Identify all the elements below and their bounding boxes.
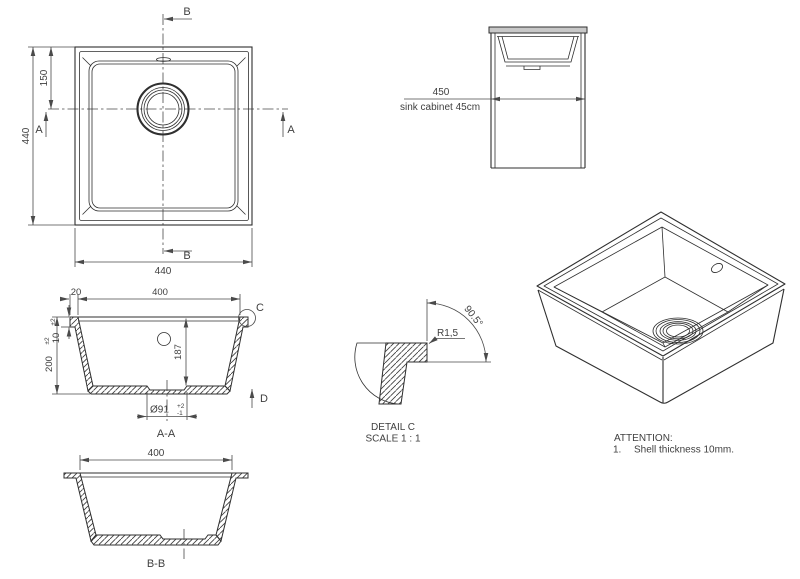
aa-dim-shell-tolerance: ±2 [50,318,57,326]
attention-item-text: Shell thickness 10mm. [634,445,734,456]
isometric-view [537,212,785,403]
plan-bowl-inner-edge [92,64,235,208]
technical-drawing-sheet: 440 150 440 A A B B [0,0,800,579]
aa-left-wall [70,317,93,391]
detail-c-view: 90.5° R1,5 DETAIL C SCALE 1 : 1 [355,299,491,445]
plan-outer-edge [75,47,252,225]
cabinet-caption: sink cabinet 45cm [400,102,480,113]
iso-drain [653,318,703,344]
aa-dim-drain-text: Ø91 [150,405,169,416]
aa-bottom-shell [88,386,230,394]
aa-dim-inner-width: 400 [70,287,240,315]
bb-right-wall [216,473,248,541]
cabinet-side-view: 450 sink cabinet 45cm [400,27,587,168]
plan-view: 440 150 440 A A B B [21,6,295,277]
countertop [489,27,587,33]
attention-title: ATTENTION: [614,433,673,444]
section-marker-b-top: B [164,6,192,19]
sink-bowl-inner [502,37,574,60]
bb-bottom-shell [91,535,221,545]
bb-left-wall [64,473,96,541]
section-bb-title: B-B [147,558,165,570]
iso-rim-inner [544,218,778,351]
sink-bowl-outer [498,37,578,63]
section-marker-a-right: A [283,112,295,137]
detail-c-scale: SCALE 1 : 1 [365,434,420,445]
detail-radius-text: R1,5 [437,328,459,339]
attention-note: ATTENTION: 1. Shell thickness 10mm. [613,433,734,456]
bb-dim-inner-width-text: 400 [148,448,165,459]
cabinet-dim-width: 450 sink cabinet 45cm [400,87,585,113]
aa-dim-depth-text: 200 [44,356,55,372]
aa-dim-inner-depth-text: 187 [173,344,184,360]
aa-detail-c-label: C [256,302,264,314]
aa-dim-inner-depth: 187 [173,319,186,386]
section-b-top-label: B [183,6,190,18]
iso-overflow-hole [710,262,724,275]
detail-c-title: DETAIL C [371,422,415,433]
plan-dim-width-text: 440 [155,266,172,277]
aa-dim-depth-tolerance: ±2 [44,337,51,345]
aa-dim-inner-width-text: 400 [152,287,168,298]
plan-rim-edge [80,52,249,221]
iso-bowl-wall-edges [554,227,768,347]
section-marker-b-bottom: B [164,250,192,262]
section-b-bottom-label: B [183,250,190,262]
aa-direction-d-marker: D [252,389,268,408]
section-aa-view: 20 400 200 ±2 10 ±2 187 [44,287,268,440]
cabinet-dim-width-text: 450 [433,87,450,98]
attention-item-number: 1. [613,445,621,456]
section-a-left-label: A [35,124,43,136]
aa-dim-rim-text: 20 [71,287,82,298]
plan-dim-drain-offset-text: 150 [39,69,50,86]
aa-dim-shell-text: 10 [51,333,62,344]
section-aa-title: A-A [157,428,176,440]
section-a-right-label: A [287,124,295,136]
drain-stub [524,66,540,70]
aa-direction-d-label: D [260,393,268,405]
cabinet-walls [491,33,585,168]
plan-dim-drain-offset: 150 [39,47,51,109]
aa-overflow-hole [158,333,171,346]
detail-wall-section [379,343,427,404]
iso-bowl-opening [554,227,768,343]
section-bb-view: 400 B-B [64,448,248,570]
plan-corner-chamfers [83,58,246,215]
plan-dim-width: 440 [75,228,252,277]
plan-dim-height-text: 440 [21,127,32,144]
iso-rim-underside-left [538,290,662,360]
aa-dim-shell: 10 ±2 [50,305,70,343]
aa-dim-drain-tol-plus: +2 [177,403,185,410]
aa-dim-drain-tol-minus: -1 [177,410,183,417]
section-marker-a-left: A [35,112,46,137]
detail-radius-callout: R1,5 [429,328,465,344]
aa-right-wall [225,317,248,391]
bb-dim-inner-width: 400 [80,448,232,470]
sink-drawing-canvas: 440 150 440 A A B B [0,0,800,579]
iso-rim-underside-right [664,289,784,360]
